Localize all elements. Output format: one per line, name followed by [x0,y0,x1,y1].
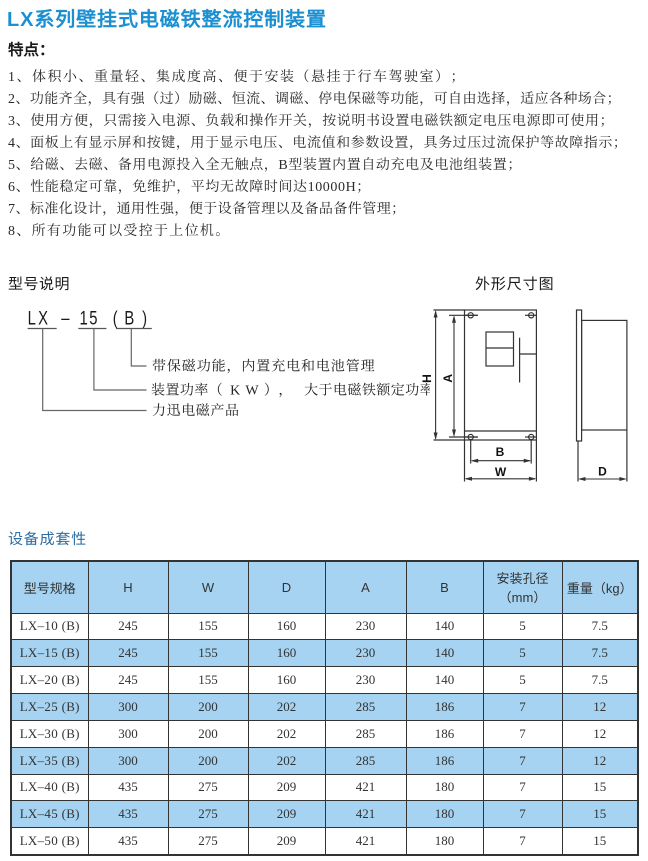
svg-text:装置功率（KW），大于电磁铁额定功率: 装置功率（KW），大于电磁铁额定功率 [151,383,430,399]
svg-text:D: D [598,465,607,479]
svg-text:带保磁功能，内置充电和电池管理: 带保磁功能，内置充电和电池管理 [152,359,376,375]
svg-text:LX–15(B): LX–15(B) [28,308,147,329]
svg-text:H: H [420,374,434,383]
svg-text:W: W [495,465,507,479]
svg-text:B: B [496,445,505,459]
svg-text:A: A [441,374,455,383]
svg-text:力迅电磁产品: 力迅电磁产品 [152,403,240,419]
